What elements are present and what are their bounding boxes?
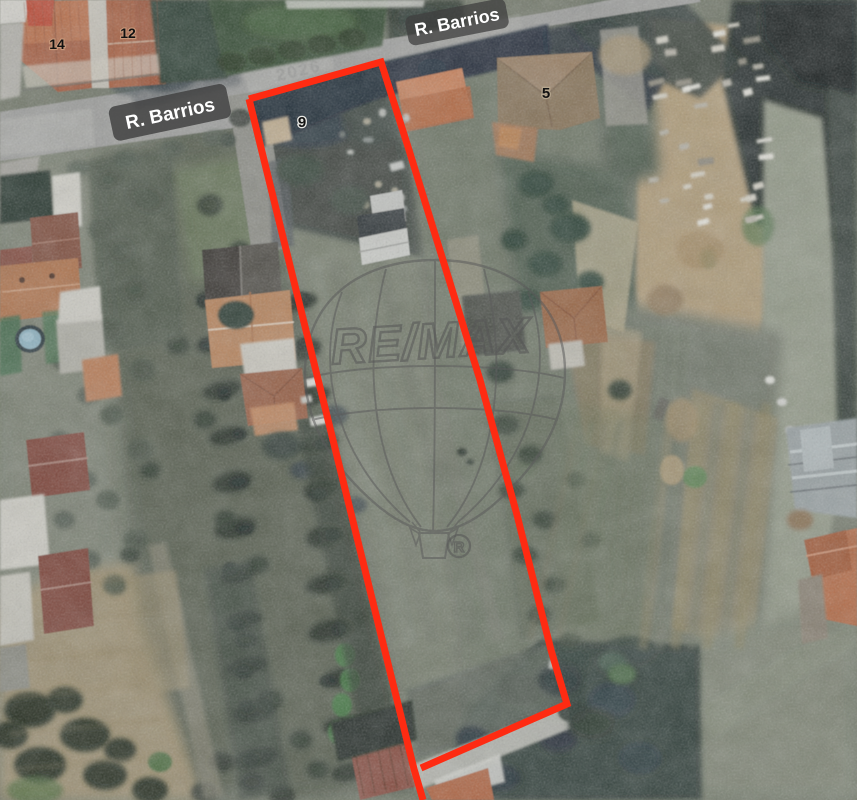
svg-text:12: 12 (120, 25, 136, 41)
svg-text:R: R (454, 539, 465, 556)
svg-text:5: 5 (542, 85, 550, 102)
svg-text:14: 14 (49, 36, 65, 52)
svg-text:9: 9 (298, 114, 306, 131)
